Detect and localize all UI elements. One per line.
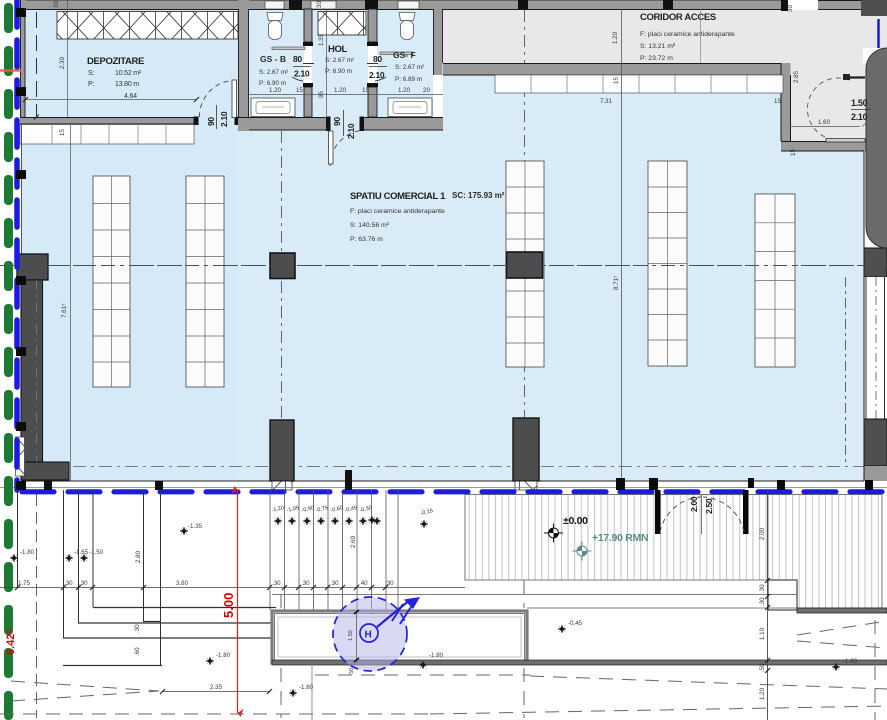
svg-text:-0.45: -0.45	[568, 620, 583, 627]
svg-text:30: 30	[53, 1, 60, 8]
svg-text:.50: .50	[759, 663, 766, 672]
svg-text:1.10: 1.10	[759, 627, 766, 640]
svg-text:6.42⁵: 6.42⁵	[5, 628, 17, 655]
svg-text:CORIDOR ACCES: CORIDOR ACCES	[640, 12, 716, 23]
svg-text:2.35: 2.35	[210, 684, 223, 691]
svg-text:1.35: 1.35	[318, 33, 325, 46]
svg-text:.30: .30	[759, 584, 766, 593]
svg-text:.30: .30	[272, 580, 281, 587]
svg-text:15: 15	[296, 87, 303, 94]
svg-text:.30: .30	[64, 580, 73, 587]
svg-text:.60: .60	[134, 647, 141, 656]
svg-text:.40: .40	[359, 580, 368, 587]
svg-text:.30: .30	[385, 580, 394, 587]
svg-text:1.50: 1.50	[348, 630, 354, 641]
svg-text:HOL: HOL	[328, 44, 348, 55]
svg-text:2.10: 2.10	[219, 111, 229, 127]
svg-text:±0.00: ±0.00	[563, 515, 588, 527]
svg-text:30: 30	[316, 1, 323, 8]
svg-text:S: 140.56 m²: S: 140.56 m²	[350, 222, 390, 229]
svg-text:5.00: 5.00	[221, 593, 236, 618]
svg-text:2.10: 2.10	[346, 123, 356, 139]
svg-text:SPATIU COMERCIAL 1: SPATIU COMERCIAL 1	[350, 191, 446, 202]
svg-text:+17.90 RMN: +17.90 RMN	[592, 532, 648, 544]
svg-text:.30: .30	[330, 580, 339, 587]
svg-text:SC: 175.93 m²: SC: 175.93 m²	[452, 191, 505, 200]
svg-text:1.60: 1.60	[818, 119, 831, 126]
svg-text:P: 6.90 m: P: 6.90 m	[325, 68, 352, 75]
svg-text:1.75: 1.75	[18, 580, 31, 587]
svg-text:DEPOZITARE: DEPOZITARE	[87, 56, 144, 67]
svg-text:15: 15	[613, 77, 620, 84]
svg-text:P: 6.89 m: P: 6.89 m	[395, 76, 422, 83]
svg-text:P:: P:	[88, 81, 94, 88]
svg-text:S: 2.67 m²: S: 2.67 m²	[259, 69, 288, 76]
svg-text:-1.80: -1.80	[20, 549, 35, 556]
svg-text:.30: .30	[79, 580, 88, 587]
svg-text:1.20: 1.20	[269, 87, 282, 94]
svg-text:15: 15	[790, 149, 797, 156]
svg-text:-1.50: -1.50	[89, 549, 104, 556]
svg-text:P: 63.76 m: P: 63.76 m	[350, 236, 383, 243]
svg-text:H: H	[365, 630, 372, 641]
svg-text:90: 90	[206, 117, 216, 126]
svg-text:-1.35: -1.35	[188, 523, 203, 530]
svg-text:2.10: 2.10	[851, 112, 868, 122]
svg-text:13.80 m: 13.80 m	[115, 81, 139, 88]
svg-text:-1.80: -1.80	[299, 684, 314, 691]
svg-text:2.50: 2.50	[704, 498, 714, 514]
svg-text:2.00: 2.00	[689, 496, 699, 512]
svg-text:10.52 m²: 10.52 m²	[115, 70, 142, 77]
svg-text:2.10: 2.10	[294, 69, 310, 79]
svg-text:30: 30	[787, 5, 794, 12]
svg-text:S: 2.67 m²: S: 2.67 m²	[395, 64, 424, 71]
svg-text:1.20: 1.20	[759, 687, 766, 700]
svg-text:.30: .30	[301, 580, 310, 587]
svg-text:4.64: 4.64	[124, 93, 137, 100]
svg-text:P: 23.72 m: P: 23.72 m	[640, 55, 673, 62]
svg-text:15: 15	[59, 129, 66, 136]
svg-text:1.20: 1.20	[398, 87, 411, 94]
svg-text:.30: .30	[759, 597, 766, 606]
svg-text:1.50: 1.50	[851, 98, 868, 108]
svg-text:2.60: 2.60	[350, 535, 357, 548]
svg-text:80: 80	[373, 54, 382, 64]
svg-text:15: 15	[774, 98, 781, 105]
svg-text:-1.80: -1.80	[843, 658, 858, 665]
svg-text:90: 90	[332, 117, 342, 126]
svg-text:2.00: 2.00	[759, 527, 766, 540]
svg-text:P: 6.90 m: P: 6.90 m	[259, 80, 286, 87]
svg-text:15: 15	[362, 87, 369, 94]
svg-text:-1.65: -1.65	[74, 549, 89, 556]
svg-text:80: 80	[293, 54, 302, 64]
svg-text:2.10: 2.10	[369, 70, 385, 80]
svg-text:7.31: 7.31	[600, 98, 613, 105]
svg-text:7.61⁵: 7.61⁵	[61, 303, 68, 318]
svg-text:F: placi ceramice antiderapant: F: placi ceramice antiderapante	[350, 208, 445, 215]
svg-text:2.80: 2.80	[135, 550, 142, 563]
svg-text:S:: S:	[88, 70, 94, 77]
svg-text:-1.80: -1.80	[216, 652, 231, 659]
svg-text:50: 50	[349, 668, 355, 674]
svg-text:20: 20	[423, 87, 430, 94]
svg-text:F: placi ceramice antiderapant: F: placi ceramice antiderapante	[640, 31, 735, 38]
svg-text:GS- F: GS- F	[393, 50, 416, 60]
svg-text:2.30: 2.30	[59, 56, 66, 69]
svg-text:2.85: 2.85	[793, 70, 800, 83]
svg-text:1.20: 1.20	[334, 87, 347, 94]
svg-text:S: 2.67 m²: S: 2.67 m²	[325, 57, 354, 64]
svg-text:GS - B: GS - B	[260, 54, 286, 64]
svg-text:1.20: 1.20	[612, 31, 619, 44]
svg-text:8.71⁵: 8.71⁵	[613, 275, 620, 290]
svg-text:3.80: 3.80	[176, 580, 189, 587]
svg-text:-1.80: -1.80	[429, 652, 444, 659]
svg-text:S: 13.21 m²: S: 13.21 m²	[640, 43, 676, 50]
svg-text:.30: .30	[134, 624, 141, 633]
